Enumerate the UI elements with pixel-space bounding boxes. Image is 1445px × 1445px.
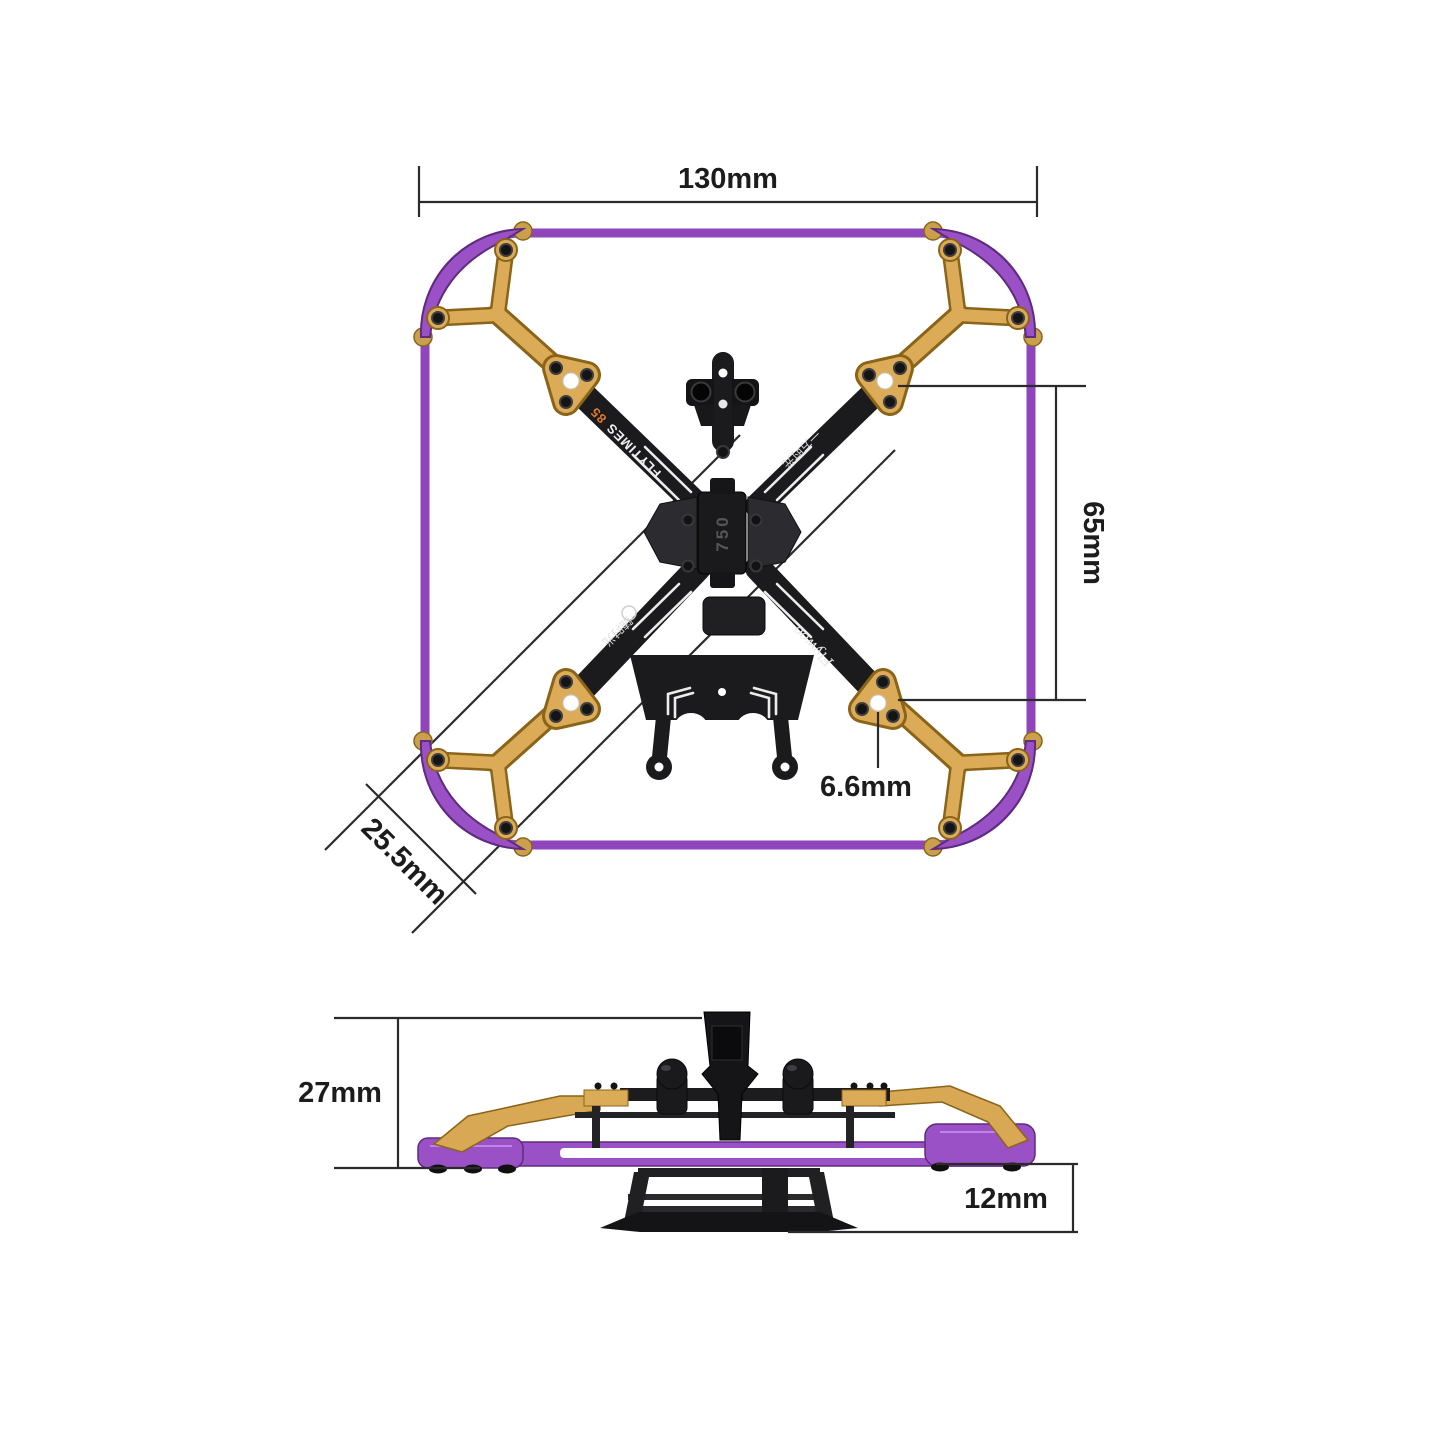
- side-post-right: [846, 1106, 854, 1148]
- ground-clearance-label: 12mm: [964, 1183, 1048, 1215]
- damper-wing-left: [644, 497, 697, 569]
- top-view: FLYTIMES85 一方时光 随时光 Flywoo 750: [325, 163, 1109, 933]
- battery-holder: [600, 1168, 858, 1232]
- leg-hole-right: [781, 763, 790, 772]
- tab-hole-1: [719, 369, 728, 378]
- side-gold-block-right: [842, 1090, 886, 1106]
- side-post-left: [592, 1106, 600, 1148]
- corner-width-label: 25.5mm: [355, 812, 454, 911]
- leg-hole-left: [655, 763, 664, 772]
- dimension-width: 130mm: [419, 163, 1037, 217]
- carbon-x-plate: FLYTIMES85 一方时光 随时光 Flywoo 750: [572, 352, 884, 780]
- damper-wing-right: [748, 497, 801, 569]
- hole-diameter-label: 6.6mm: [820, 771, 912, 803]
- bridge-notch-right: [736, 713, 770, 743]
- camera-lens-right: [736, 383, 755, 402]
- tab-screw: [717, 446, 729, 458]
- center-stack-marking: 750: [713, 514, 732, 551]
- esc-tab-top: [710, 478, 735, 494]
- side-view: 27mm 12mm: [298, 1012, 1078, 1232]
- diagram-svg: FLYTIMES85 一方时光 随时光 Flywoo 750: [0, 0, 1445, 1445]
- tab-hole-2: [719, 400, 728, 409]
- battery-tray: [600, 1212, 858, 1232]
- drone-frame-dimension-diagram: FLYTIMES85 一方时光 随时光 Flywoo 750: [0, 0, 1445, 1445]
- lower-stack-box: [703, 597, 765, 635]
- frame-height-label: 27mm: [298, 1077, 382, 1109]
- side-camera-lens: [712, 1026, 742, 1060]
- dim-width-label: 130mm: [678, 163, 778, 195]
- dimension-motor-spacing: 65mm: [898, 386, 1109, 700]
- bridge-notch-left: [674, 713, 708, 743]
- camera-lens-left: [692, 383, 711, 402]
- esc-tab-bottom: [710, 572, 735, 588]
- dim-motor-spacing-label: 65mm: [1077, 501, 1109, 585]
- brand-marking: FLYTIMES85: [587, 404, 664, 481]
- side-gold-block-left: [584, 1090, 628, 1106]
- bridge-center-hole: [718, 688, 726, 696]
